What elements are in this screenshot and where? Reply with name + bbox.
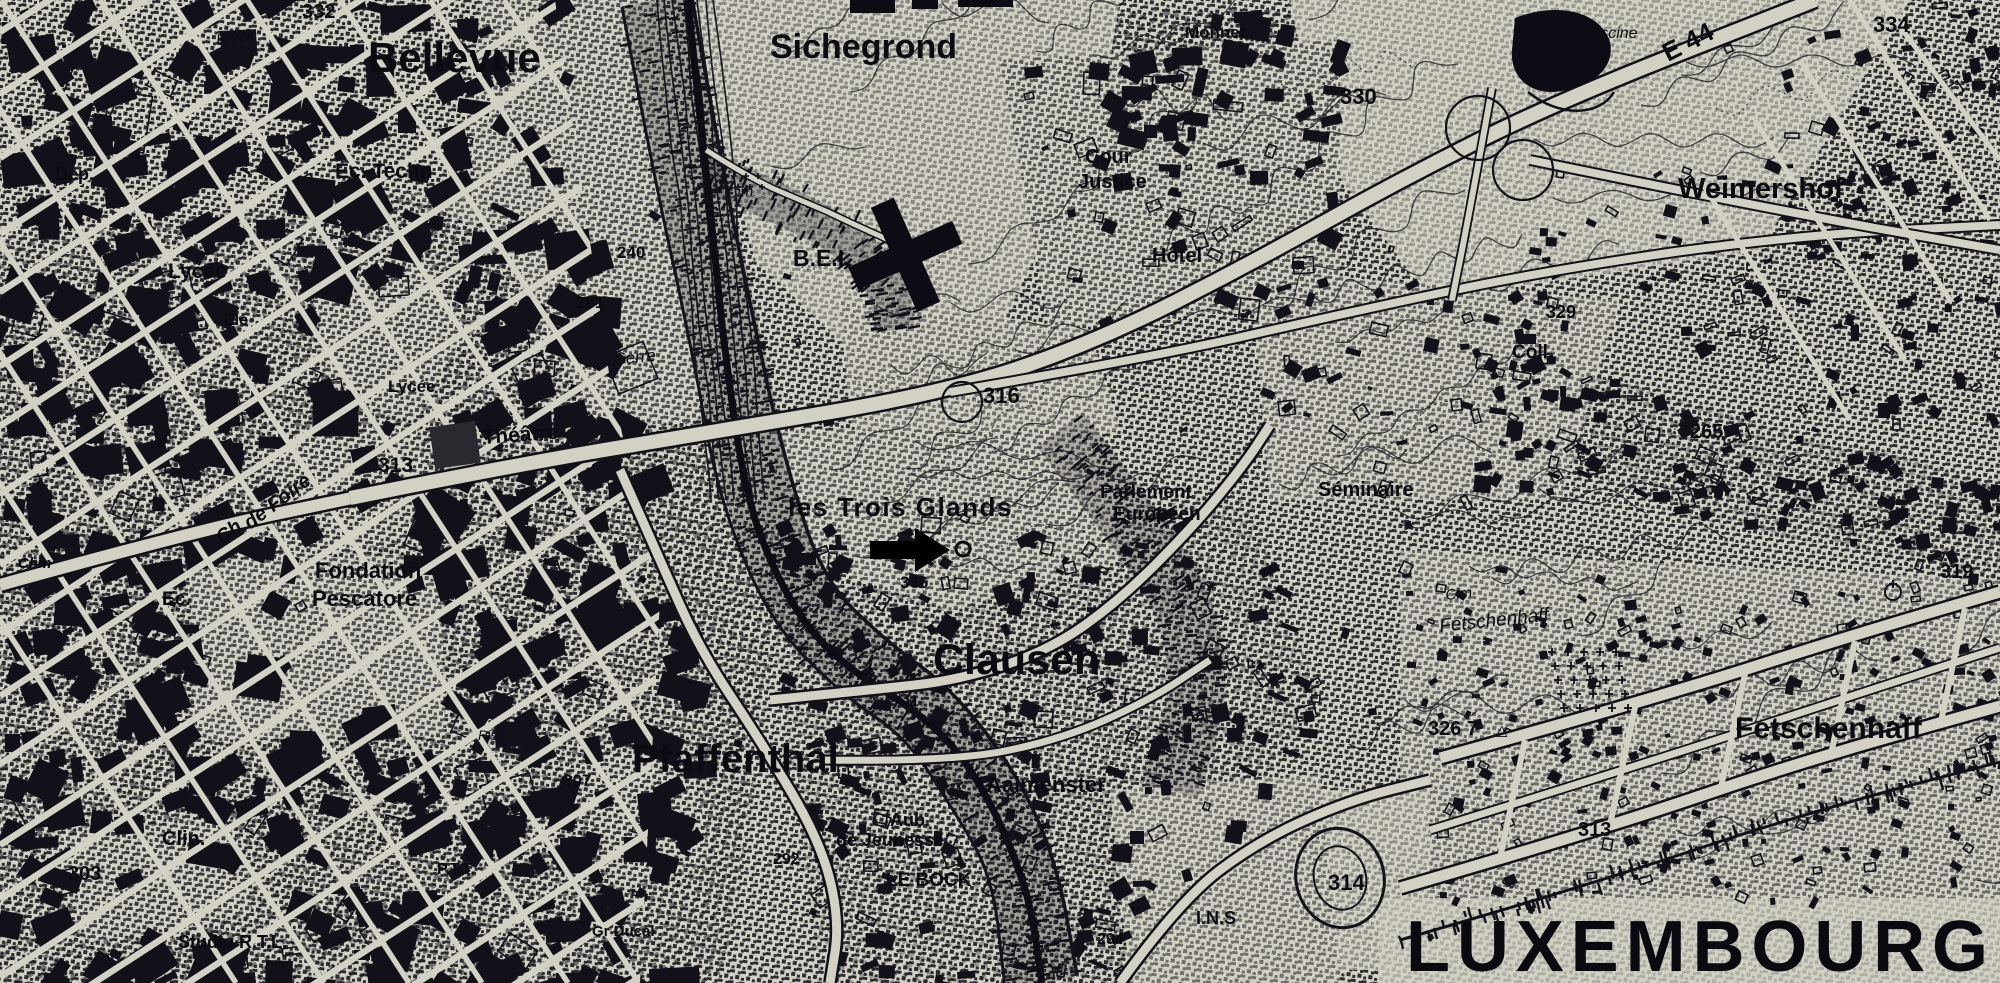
- svg-text:265: 265: [1690, 421, 1723, 443]
- svg-text:307: 307: [563, 771, 591, 790]
- svg-text:Pfaffenthal: Pfaffenthal: [632, 737, 839, 781]
- svg-text:294: 294: [1097, 931, 1124, 948]
- svg-text:314: 314: [1328, 870, 1365, 895]
- svg-text:Clausen: Clausen: [933, 636, 1100, 684]
- svg-text:334: 334: [1873, 12, 1910, 37]
- svg-text:Bellevue: Bellevue: [368, 34, 541, 81]
- svg-text:Aub.: Aub.: [890, 810, 930, 830]
- svg-text:Cim: Cim: [726, 183, 754, 202]
- svg-text:281: 281: [576, 293, 604, 312]
- svg-text:Ec.: Ec.: [162, 589, 191, 610]
- svg-text:Fetschenhaff: Fetschenhaff: [1735, 712, 1923, 745]
- svg-text:P.T.T.: P.T.T.: [437, 861, 475, 878]
- svg-text:Hôtel: Hôtel: [1152, 245, 1202, 267]
- svg-text:313: 313: [1578, 819, 1611, 841]
- svg-text:11: 11: [903, 693, 919, 710]
- svg-text:LE BOCK: LE BOCK: [886, 870, 972, 891]
- svg-text:Cim: Cim: [1445, 584, 1473, 604]
- svg-text:332: 332: [302, 1, 335, 23]
- svg-text:319: 319: [1940, 561, 1973, 583]
- svg-text:Ec. Techn: Ec. Techn: [335, 160, 433, 183]
- svg-text:LUXEMBOURG: LUXEMBOURG: [1406, 907, 1988, 983]
- svg-text:Piscine: Piscine: [1586, 25, 1638, 42]
- svg-text:292: 292: [773, 851, 800, 868]
- svg-text:△: △: [1496, 722, 1508, 739]
- svg-text:Fondation: Fondation: [315, 558, 421, 583]
- svg-text:313: 313: [378, 454, 413, 477]
- svg-text:366: 366: [900, 573, 928, 592]
- svg-text:Justice: Justice: [1078, 171, 1147, 193]
- svg-text:Séminaire: Séminaire: [1318, 479, 1414, 501]
- svg-text:Weimershof: Weimershof: [1678, 173, 1844, 205]
- svg-text:329: 329: [1546, 302, 1576, 322]
- svg-text:316: 316: [983, 383, 1020, 408]
- svg-text:Pescatore: Pescatore: [312, 586, 417, 611]
- svg-text:303: 303: [68, 863, 101, 885]
- svg-text:Lycée: Lycée: [388, 377, 436, 396]
- svg-text:240: 240: [617, 243, 645, 262]
- svg-text:Sichegrond: Sichegrond: [770, 28, 957, 66]
- svg-text:I.N.S: I.N.S: [1196, 908, 1236, 928]
- svg-text:Lycée: Lycée: [168, 260, 227, 283]
- svg-text:Coll.: Coll.: [1512, 342, 1553, 363]
- svg-text:B.E.I.: B.E.I.: [793, 245, 851, 271]
- svg-text:Studio R.T.L.: Studio R.T.L.: [178, 932, 287, 952]
- svg-text:Clin.: Clin.: [162, 828, 205, 850]
- svg-text:330: 330: [1340, 84, 1377, 109]
- svg-text:Cour: Cour: [1085, 146, 1132, 168]
- svg-text:de Jeunesse: de Jeunesse: [836, 830, 944, 850]
- svg-text:Chm: Chm: [18, 555, 51, 572]
- svg-text:les Trois Glands: les Trois Glands: [788, 492, 1013, 522]
- svg-text:326 7: 326 7: [1428, 718, 1478, 740]
- svg-text:Pisc.: Pisc.: [478, 727, 508, 743]
- svg-text:Parlement: Parlement: [1100, 482, 1193, 503]
- svg-text:Aalmenster: Aalmenster: [986, 772, 1106, 797]
- svg-text:Dep.: Dep.: [55, 164, 94, 184]
- svg-text:Européen: Européen: [1113, 504, 1201, 525]
- svg-text:Ele: Ele: [224, 312, 248, 329]
- svg-text:Monnet: Monnet: [1185, 23, 1246, 42]
- svg-text:Gr Ducal: Gr Ducal: [592, 923, 655, 940]
